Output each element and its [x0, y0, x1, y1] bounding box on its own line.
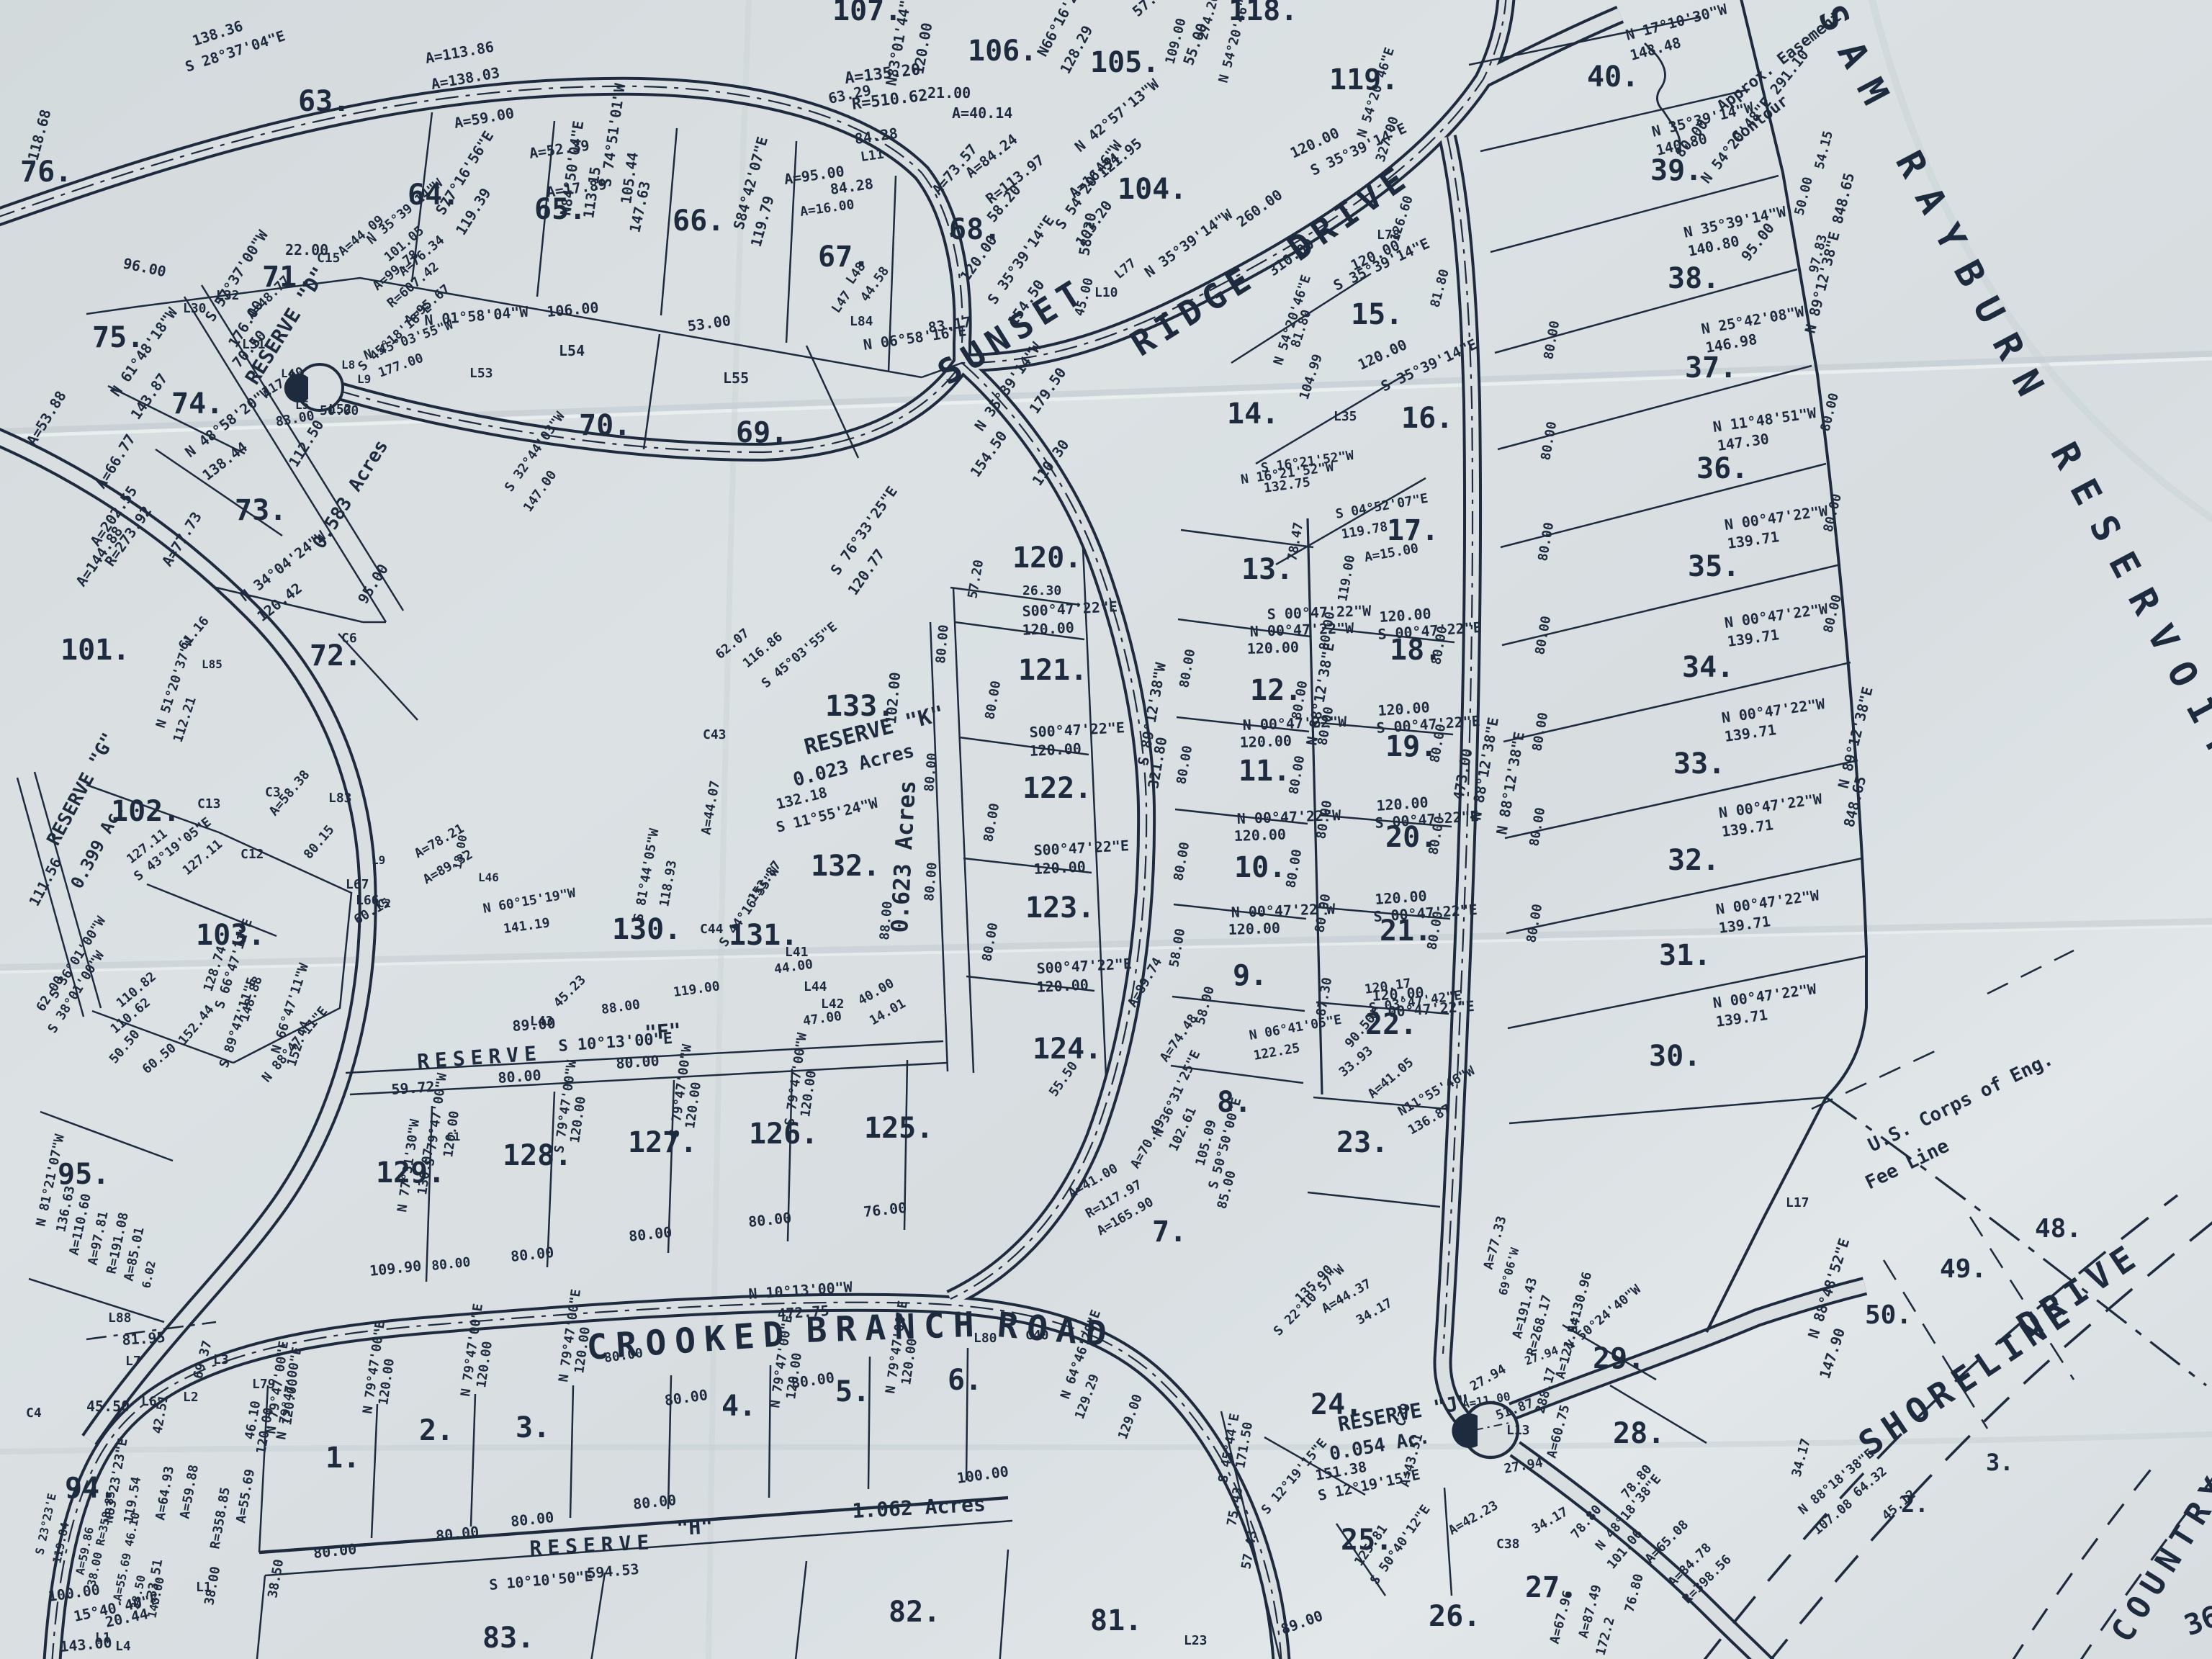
plat-map-svg: SAM RAYBURN RESERVOIRSUNSETRIDGEDRIVECRO… [0, 0, 2212, 1659]
photo-tint [0, 0, 2212, 1659]
plat-map-photo: SAM RAYBURN RESERVOIRSUNSETRIDGEDRIVECRO… [0, 0, 2212, 1659]
